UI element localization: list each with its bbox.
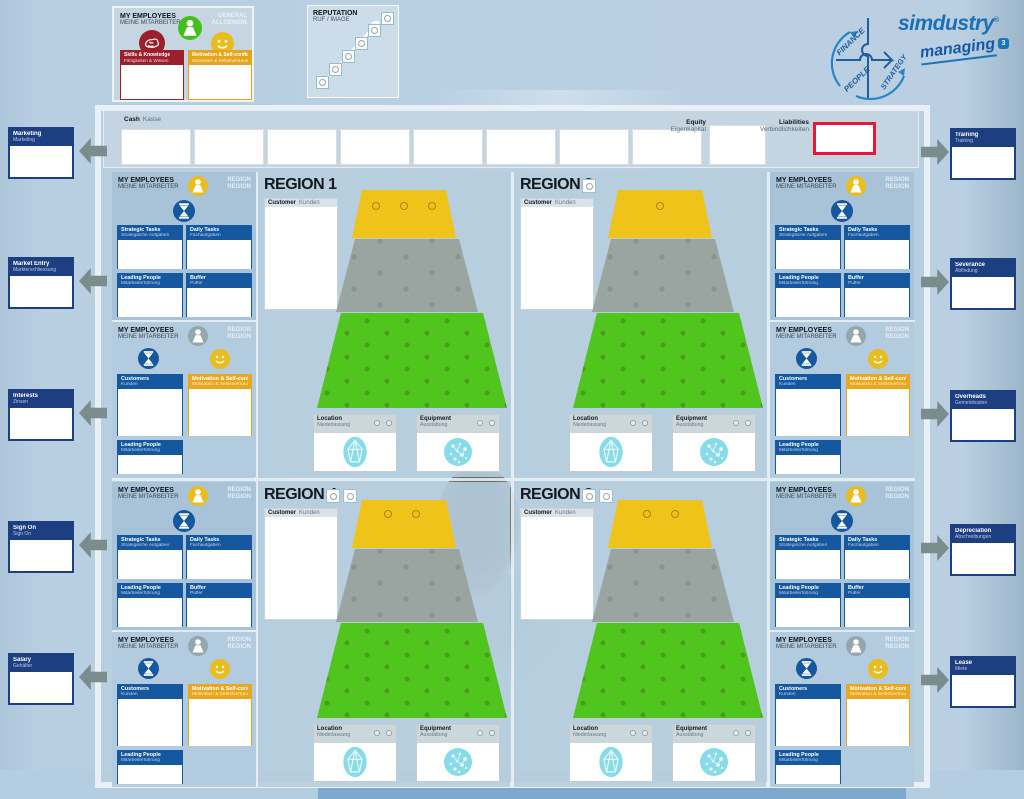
motivation-box: Motivation & Self-confidenceMotivation &… <box>846 684 910 746</box>
region-3: REGION 3 CustomerKunden LocationNiederla… <box>514 482 766 787</box>
customer-slot[interactable] <box>521 207 593 305</box>
buffer-slot[interactable] <box>187 598 251 627</box>
cash-slot[interactable] <box>340 129 410 165</box>
panel-subtitle: MEINE MITARBEITER <box>120 20 181 26</box>
location-icon <box>340 745 370 779</box>
general-employees-panel: MY EMPLOYEES MEINE MITARBEITER GENERALAL… <box>112 6 254 102</box>
daily-tasks-box: Daily TasksFachaufgaben <box>186 225 252 269</box>
cash-label: CashKasse <box>124 116 161 123</box>
location-box: LocationNiederlassung <box>313 414 397 472</box>
panel-subtitle: MEINE MITARBEITER <box>776 494 837 500</box>
equipment-box: EquipmentAusstattung <box>672 724 756 782</box>
cost-label-header: Market Entry Markterschliessung <box>10 259 72 276</box>
buffer-slot[interactable] <box>845 288 909 317</box>
motivation-slot[interactable] <box>189 65 251 99</box>
cost-slot[interactable] <box>10 146 72 177</box>
panel-corner-label: GENERALALLGEMEIN <box>212 13 247 27</box>
location-slot[interactable] <box>570 743 652 781</box>
cost-label-header: Overheads Gemeinkosten <box>952 392 1014 409</box>
panel-title: MY EMPLOYEES <box>118 637 179 644</box>
panel-corner-label: REGIONREGION <box>227 177 251 191</box>
staff-pin-icon <box>428 202 436 210</box>
hourglass-icon <box>173 510 195 532</box>
hole-icon <box>630 730 636 736</box>
equipment-box: EquipmentAusstattung <box>672 414 756 472</box>
customer-box: CustomerKunden <box>264 198 338 310</box>
hourglass-icon <box>796 658 817 679</box>
customer-label: CustomerKunden <box>265 509 337 517</box>
leading-people-slot[interactable] <box>118 598 182 627</box>
equipment-slot[interactable] <box>417 433 499 471</box>
cost-slot[interactable] <box>10 540 72 571</box>
cost-label-lease: Lease Miete <box>950 656 1016 708</box>
cost-label-header: Lease Miete <box>952 658 1014 675</box>
panel-subtitle: MEINE MITARBEITER <box>776 334 837 340</box>
customer-label: CustomerKunden <box>265 199 337 207</box>
leading-people-box: Leading PeopleMitarbeiterführung <box>117 273 183 317</box>
region-markers <box>582 489 613 503</box>
staff-pin-icon <box>400 202 408 210</box>
location-box: LocationNiederlassung <box>313 724 397 782</box>
panel-subtitle: MEINE MITARBEITER <box>118 494 179 500</box>
motivation-box: Motivation & Self-confidenceMotivation &… <box>188 684 252 746</box>
customer-slot[interactable] <box>521 517 593 615</box>
skills-slot[interactable] <box>121 65 183 99</box>
employee-motivation-panel-2: MY EMPLOYEES MEINE MITARBEITER REGIONREG… <box>770 322 914 477</box>
equipment-icon <box>698 746 730 778</box>
buffer-box: BufferPuffer <box>844 273 910 317</box>
person-icon <box>846 486 866 506</box>
cash-slot[interactable] <box>121 129 191 165</box>
region-markers <box>582 179 596 193</box>
cash-slot[interactable] <box>194 129 264 165</box>
leading-people-slot[interactable] <box>118 455 182 474</box>
customer-label: CustomerKunden <box>521 199 593 207</box>
hole-icon <box>642 730 648 736</box>
market-level-bottom[interactable] <box>573 313 763 408</box>
panel-corner-label: REGIONREGION <box>885 327 909 341</box>
person-icon <box>188 486 208 506</box>
cost-slot[interactable] <box>10 672 72 703</box>
person-icon <box>846 636 866 656</box>
hole-icon <box>386 420 392 426</box>
panel-subtitle: MEINE MITARBEITER <box>776 644 837 650</box>
svg-text:STRATEGY: STRATEGY <box>879 52 910 91</box>
hole-icon <box>733 420 739 426</box>
customers-box: CustomersKunden <box>775 684 841 746</box>
buffer-box: BufferPuffer <box>844 583 910 627</box>
leading-people-box: Leading PeopleMitarbeiterführung <box>117 440 183 474</box>
strategic-tasks-slot[interactable] <box>118 550 182 579</box>
market-level-middle[interactable] <box>336 549 478 622</box>
cost-label-header: Severance Abfindung <box>952 260 1014 277</box>
equipment-slot[interactable] <box>673 743 755 781</box>
cost-label-salary: Salary Gehälter <box>8 653 74 705</box>
employee-motivation-panel-4: MY EMPLOYEES MEINE MITARBEITER REGIONREG… <box>770 632 914 787</box>
buffer-box: BufferPuffer <box>186 273 252 317</box>
market-level-middle[interactable] <box>592 239 734 312</box>
equipment-slot[interactable] <box>673 433 755 471</box>
panel-subtitle: MEINE MITARBEITER <box>118 644 179 650</box>
region-marker[interactable] <box>582 179 596 193</box>
cost-slot[interactable] <box>10 276 72 307</box>
leading-people-slot[interactable] <box>118 288 182 317</box>
motivation-slot[interactable] <box>189 389 251 436</box>
cash-slot-row <box>121 129 702 165</box>
daily-tasks-box: Daily TasksFachaufgaben <box>186 535 252 579</box>
panel-corner-label: REGIONREGION <box>885 487 909 501</box>
region-2: REGION 2 CustomerKunden LocationNiederla… <box>514 172 766 477</box>
market-level-top[interactable] <box>608 500 712 548</box>
leading-people-slot[interactable] <box>776 598 840 627</box>
market-level-top[interactable] <box>608 190 712 238</box>
location-icon <box>340 435 370 469</box>
reputation-panel: REPUTATIONRUF / IMAGE <box>307 5 399 98</box>
market-level-middle[interactable] <box>336 239 478 312</box>
equipment-slot[interactable] <box>417 743 499 781</box>
person-icon <box>846 326 866 346</box>
product-sup-badge: 3 <box>998 38 1009 49</box>
hole-icon <box>745 420 751 426</box>
strategic-tasks-slot[interactable] <box>776 240 840 269</box>
panel-title: MY EMPLOYEES <box>776 637 837 644</box>
hole-icon <box>489 730 495 736</box>
daily-tasks-slot[interactable] <box>845 240 909 269</box>
customers-slot[interactable] <box>776 699 840 746</box>
market-level-top[interactable] <box>352 500 456 548</box>
product-wordmark: managing <box>919 35 997 65</box>
panel-title: MY EMPLOYEES <box>118 177 179 184</box>
hole-icon <box>489 420 495 426</box>
smiley-icon <box>868 659 888 679</box>
person-icon <box>188 326 208 346</box>
skills-knowledge-box: Skills & KnowledgeFähigkeiten & Wissen <box>120 50 184 100</box>
cost-label-training: Training Training <box>950 128 1016 180</box>
leading-people-slot[interactable] <box>776 765 840 784</box>
hole-icon <box>386 730 392 736</box>
cost-label-header: Depreciation Abschreibungen <box>952 526 1014 543</box>
equipment-box: EquipmentAusstattung <box>416 414 500 472</box>
hole-icon <box>374 420 380 426</box>
region-title: REGION 1 <box>264 176 336 194</box>
panel-title: MY EMPLOYEES <box>776 327 837 334</box>
daily-tasks-box: Daily TasksFachaufgaben <box>844 535 910 579</box>
cost-label-header: Sign On Sign On <box>10 523 72 540</box>
hole-icon <box>733 730 739 736</box>
motivation-box: Motivation & Self-confidenceMotivation &… <box>188 374 252 436</box>
liabilities-slot[interactable] <box>813 122 876 155</box>
location-slot[interactable] <box>314 433 396 471</box>
reputation-step[interactable] <box>381 12 394 25</box>
cost-slot[interactable] <box>952 409 1014 440</box>
staff-pin-icon <box>384 510 392 518</box>
customer-slot[interactable] <box>265 207 337 305</box>
leading-people-box: Leading PeopleMitarbeiterführung <box>117 583 183 627</box>
panel-corner-label: REGIONREGION <box>227 637 251 651</box>
location-slot[interactable] <box>314 743 396 781</box>
cost-slot[interactable] <box>952 675 1014 706</box>
person-icon <box>188 176 208 196</box>
motivation-slot[interactable] <box>847 389 909 436</box>
location-box: LocationNiederlassung <box>569 414 653 472</box>
buffer-slot[interactable] <box>187 288 251 317</box>
customers-box: CustomersKunden <box>117 374 183 436</box>
customer-box: CustomerKunden <box>520 508 594 620</box>
market-level-bottom[interactable] <box>317 623 507 718</box>
smiley-icon <box>210 659 230 679</box>
location-icon <box>596 435 626 469</box>
leading-people-box: Leading PeopleMitarbeiterführung <box>117 750 183 784</box>
cost-label-overheads: Overheads Gemeinkosten <box>950 390 1016 442</box>
equipment-box: EquipmentAusstattung <box>416 724 500 782</box>
customers-slot[interactable] <box>776 389 840 436</box>
leading-people-box: Leading PeopleMitarbeiterführung <box>775 583 841 627</box>
strategic-tasks-box: Strategic TasksStrategische Aufgaben <box>117 225 183 269</box>
strategic-tasks-box: Strategic TasksStrategische Aufgaben <box>775 225 841 269</box>
hole-icon <box>630 420 636 426</box>
daily-tasks-box: Daily TasksFachaufgaben <box>844 225 910 269</box>
cost-slot[interactable] <box>952 543 1014 574</box>
motivation-box: Motivation & Self-confidenceMotivation &… <box>846 374 910 436</box>
customers-box: CustomersKunden <box>775 374 841 436</box>
hole-icon <box>642 420 648 426</box>
hole-icon <box>477 730 483 736</box>
customers-box: CustomersKunden <box>117 684 183 746</box>
staff-pin-icon <box>412 510 420 518</box>
cash-slot[interactable] <box>486 129 556 165</box>
cost-slot[interactable] <box>10 408 72 439</box>
liabilities-label: LiabilitiesVerbindlichkeiten <box>749 119 809 133</box>
table-edge-bar <box>318 788 906 799</box>
region-marker[interactable] <box>599 489 613 503</box>
location-icon <box>596 745 626 779</box>
market-level-middle[interactable] <box>592 549 734 622</box>
cash-slot[interactable] <box>413 129 483 165</box>
daily-tasks-slot[interactable] <box>187 240 251 269</box>
cost-slot[interactable] <box>952 147 1014 178</box>
hole-icon <box>374 730 380 736</box>
equity-label: EquityEigenkapital <box>646 119 706 133</box>
panel-corner-label: REGIONREGION <box>227 327 251 341</box>
employee-task-panel-2: MY EMPLOYEES MEINE MITARBEITER REGIONREG… <box>770 172 914 320</box>
cost-label-header: Training Training <box>952 130 1014 147</box>
panel-corner-label: REGIONREGION <box>885 637 909 651</box>
hourglass-icon <box>831 200 853 222</box>
cost-label-interests: Interests Zinsen <box>8 389 74 441</box>
hourglass-icon <box>173 200 195 222</box>
daily-tasks-slot[interactable] <box>187 550 251 579</box>
brand-wordmark: simdustry® <box>898 12 999 36</box>
region-1: REGION 1 CustomerKunden LocationNiederla… <box>258 172 510 477</box>
location-slot[interactable] <box>570 433 652 471</box>
market-level-top[interactable] <box>352 190 456 238</box>
person-icon <box>846 176 866 196</box>
region-marker[interactable] <box>343 489 357 503</box>
buffer-slot[interactable] <box>845 598 909 627</box>
strategic-tasks-slot[interactable] <box>118 240 182 269</box>
panel-subtitle: MEINE MITARBEITER <box>776 184 837 190</box>
hourglass-icon <box>138 348 159 369</box>
reputation-step[interactable] <box>355 37 368 50</box>
cost-label-depreciation: Depreciation Abschreibungen <box>950 524 1016 576</box>
market-level-bottom[interactable] <box>317 313 507 408</box>
reputation-step[interactable] <box>368 24 381 37</box>
cost-label-sign-on: Sign On Sign On <box>8 521 74 573</box>
region-4: REGION 4 CustomerKunden LocationNiederla… <box>258 482 510 787</box>
motivation-slot[interactable] <box>189 699 251 746</box>
hourglass-icon <box>796 348 817 369</box>
daily-tasks-slot[interactable] <box>845 550 909 579</box>
cash-slot[interactable] <box>632 129 702 165</box>
customer-slot[interactable] <box>265 517 337 615</box>
employee-task-panel-3: MY EMPLOYEES MEINE MITARBEITER REGIONREG… <box>112 482 256 630</box>
leading-people-box: Leading PeopleMitarbeiterführung <box>775 440 841 474</box>
panel-title: MY EMPLOYEES <box>118 327 179 334</box>
person-icon <box>188 636 208 656</box>
market-level-bottom[interactable] <box>573 623 763 718</box>
hourglass-icon <box>831 510 853 532</box>
customers-slot[interactable] <box>118 699 182 746</box>
region-marker[interactable] <box>582 489 596 503</box>
panel-subtitle: MEINE MITARBEITER <box>118 184 179 190</box>
strategic-tasks-box: Strategic TasksStrategische Aufgaben <box>117 535 183 579</box>
cost-label-header: Salary Gehälter <box>10 655 72 672</box>
person-icon <box>178 16 202 40</box>
leading-people-box: Leading PeopleMitarbeiterführung <box>775 273 841 317</box>
customer-box: CustomerKunden <box>264 508 338 620</box>
leading-people-slot[interactable] <box>776 288 840 317</box>
simdustry-board-page: CashKasse EquityEigenkapital Liabilities… <box>0 0 1024 799</box>
panel-title: MY EMPLOYEES <box>776 487 837 494</box>
hourglass-icon <box>138 658 159 679</box>
cost-label-market-entry: Market Entry Markterschliessung <box>8 257 74 309</box>
employee-task-panel-4: MY EMPLOYEES MEINE MITARBEITER REGIONREG… <box>770 482 914 630</box>
motivation-slot[interactable] <box>847 699 909 746</box>
cash-slot[interactable] <box>267 129 337 165</box>
motivation-box: Motivation & Self-confidenceMotivation &… <box>188 50 252 100</box>
staff-pin-icon <box>372 202 380 210</box>
region-marker[interactable] <box>326 489 340 503</box>
leading-people-box: Leading PeopleMitarbeiterführung <box>775 750 841 784</box>
board-divider <box>112 478 915 481</box>
panel-corner-label: REGIONREGION <box>227 487 251 501</box>
finance-strip: CashKasse EquityEigenkapital Liabilities… <box>103 110 919 168</box>
cost-label-header: Marketing Marketing <box>10 129 72 146</box>
customers-slot[interactable] <box>118 389 182 436</box>
region-markers <box>326 489 357 503</box>
panel-subtitle: MEINE MITARBEITER <box>118 334 179 340</box>
strategic-tasks-slot[interactable] <box>776 550 840 579</box>
panel-title: MY EMPLOYEES <box>776 177 837 184</box>
simdustry-logo: FINANCE PEOPLE STRATEGY simdustry® manag… <box>820 2 1020 112</box>
staff-pin-icon <box>656 202 664 210</box>
reputation-step[interactable] <box>342 50 355 63</box>
equipment-icon <box>698 436 730 468</box>
hole-icon <box>477 420 483 426</box>
cash-slot[interactable] <box>559 129 629 165</box>
cost-label-header: Interests Zinsen <box>10 391 72 408</box>
equipment-icon <box>442 746 474 778</box>
smiley-icon <box>868 349 888 369</box>
cost-label-marketing: Marketing Marketing <box>8 127 74 179</box>
location-box: LocationNiederlassung <box>569 724 653 782</box>
employee-task-panel-1: MY EMPLOYEES MEINE MITARBEITER REGIONREG… <box>112 172 256 320</box>
customer-box: CustomerKunden <box>520 198 594 310</box>
panel-title: MY EMPLOYEES <box>118 487 179 494</box>
staff-pin-icon <box>671 510 679 518</box>
cost-label-severance: Severance Abfindung <box>950 258 1016 310</box>
employee-motivation-panel-1: MY EMPLOYEES MEINE MITARBEITER REGIONREG… <box>112 322 256 477</box>
smiley-icon <box>210 349 230 369</box>
hole-icon <box>745 730 751 736</box>
leading-people-slot[interactable] <box>118 765 182 784</box>
panel-corner-label: REGIONREGION <box>885 177 909 191</box>
buffer-box: BufferPuffer <box>186 583 252 627</box>
cost-slot[interactable] <box>952 277 1014 308</box>
leading-people-slot[interactable] <box>776 455 840 474</box>
panel-title: MY EMPLOYEES <box>120 13 181 20</box>
strategic-tasks-box: Strategic TasksStrategische Aufgaben <box>775 535 841 579</box>
equipment-icon <box>442 436 474 468</box>
reputation-step[interactable] <box>329 63 342 76</box>
staff-pin-icon <box>643 510 651 518</box>
customer-label: CustomerKunden <box>521 509 593 517</box>
reputation-step[interactable] <box>316 76 329 89</box>
employee-motivation-panel-3: MY EMPLOYEES MEINE MITARBEITER REGIONREG… <box>112 632 256 787</box>
